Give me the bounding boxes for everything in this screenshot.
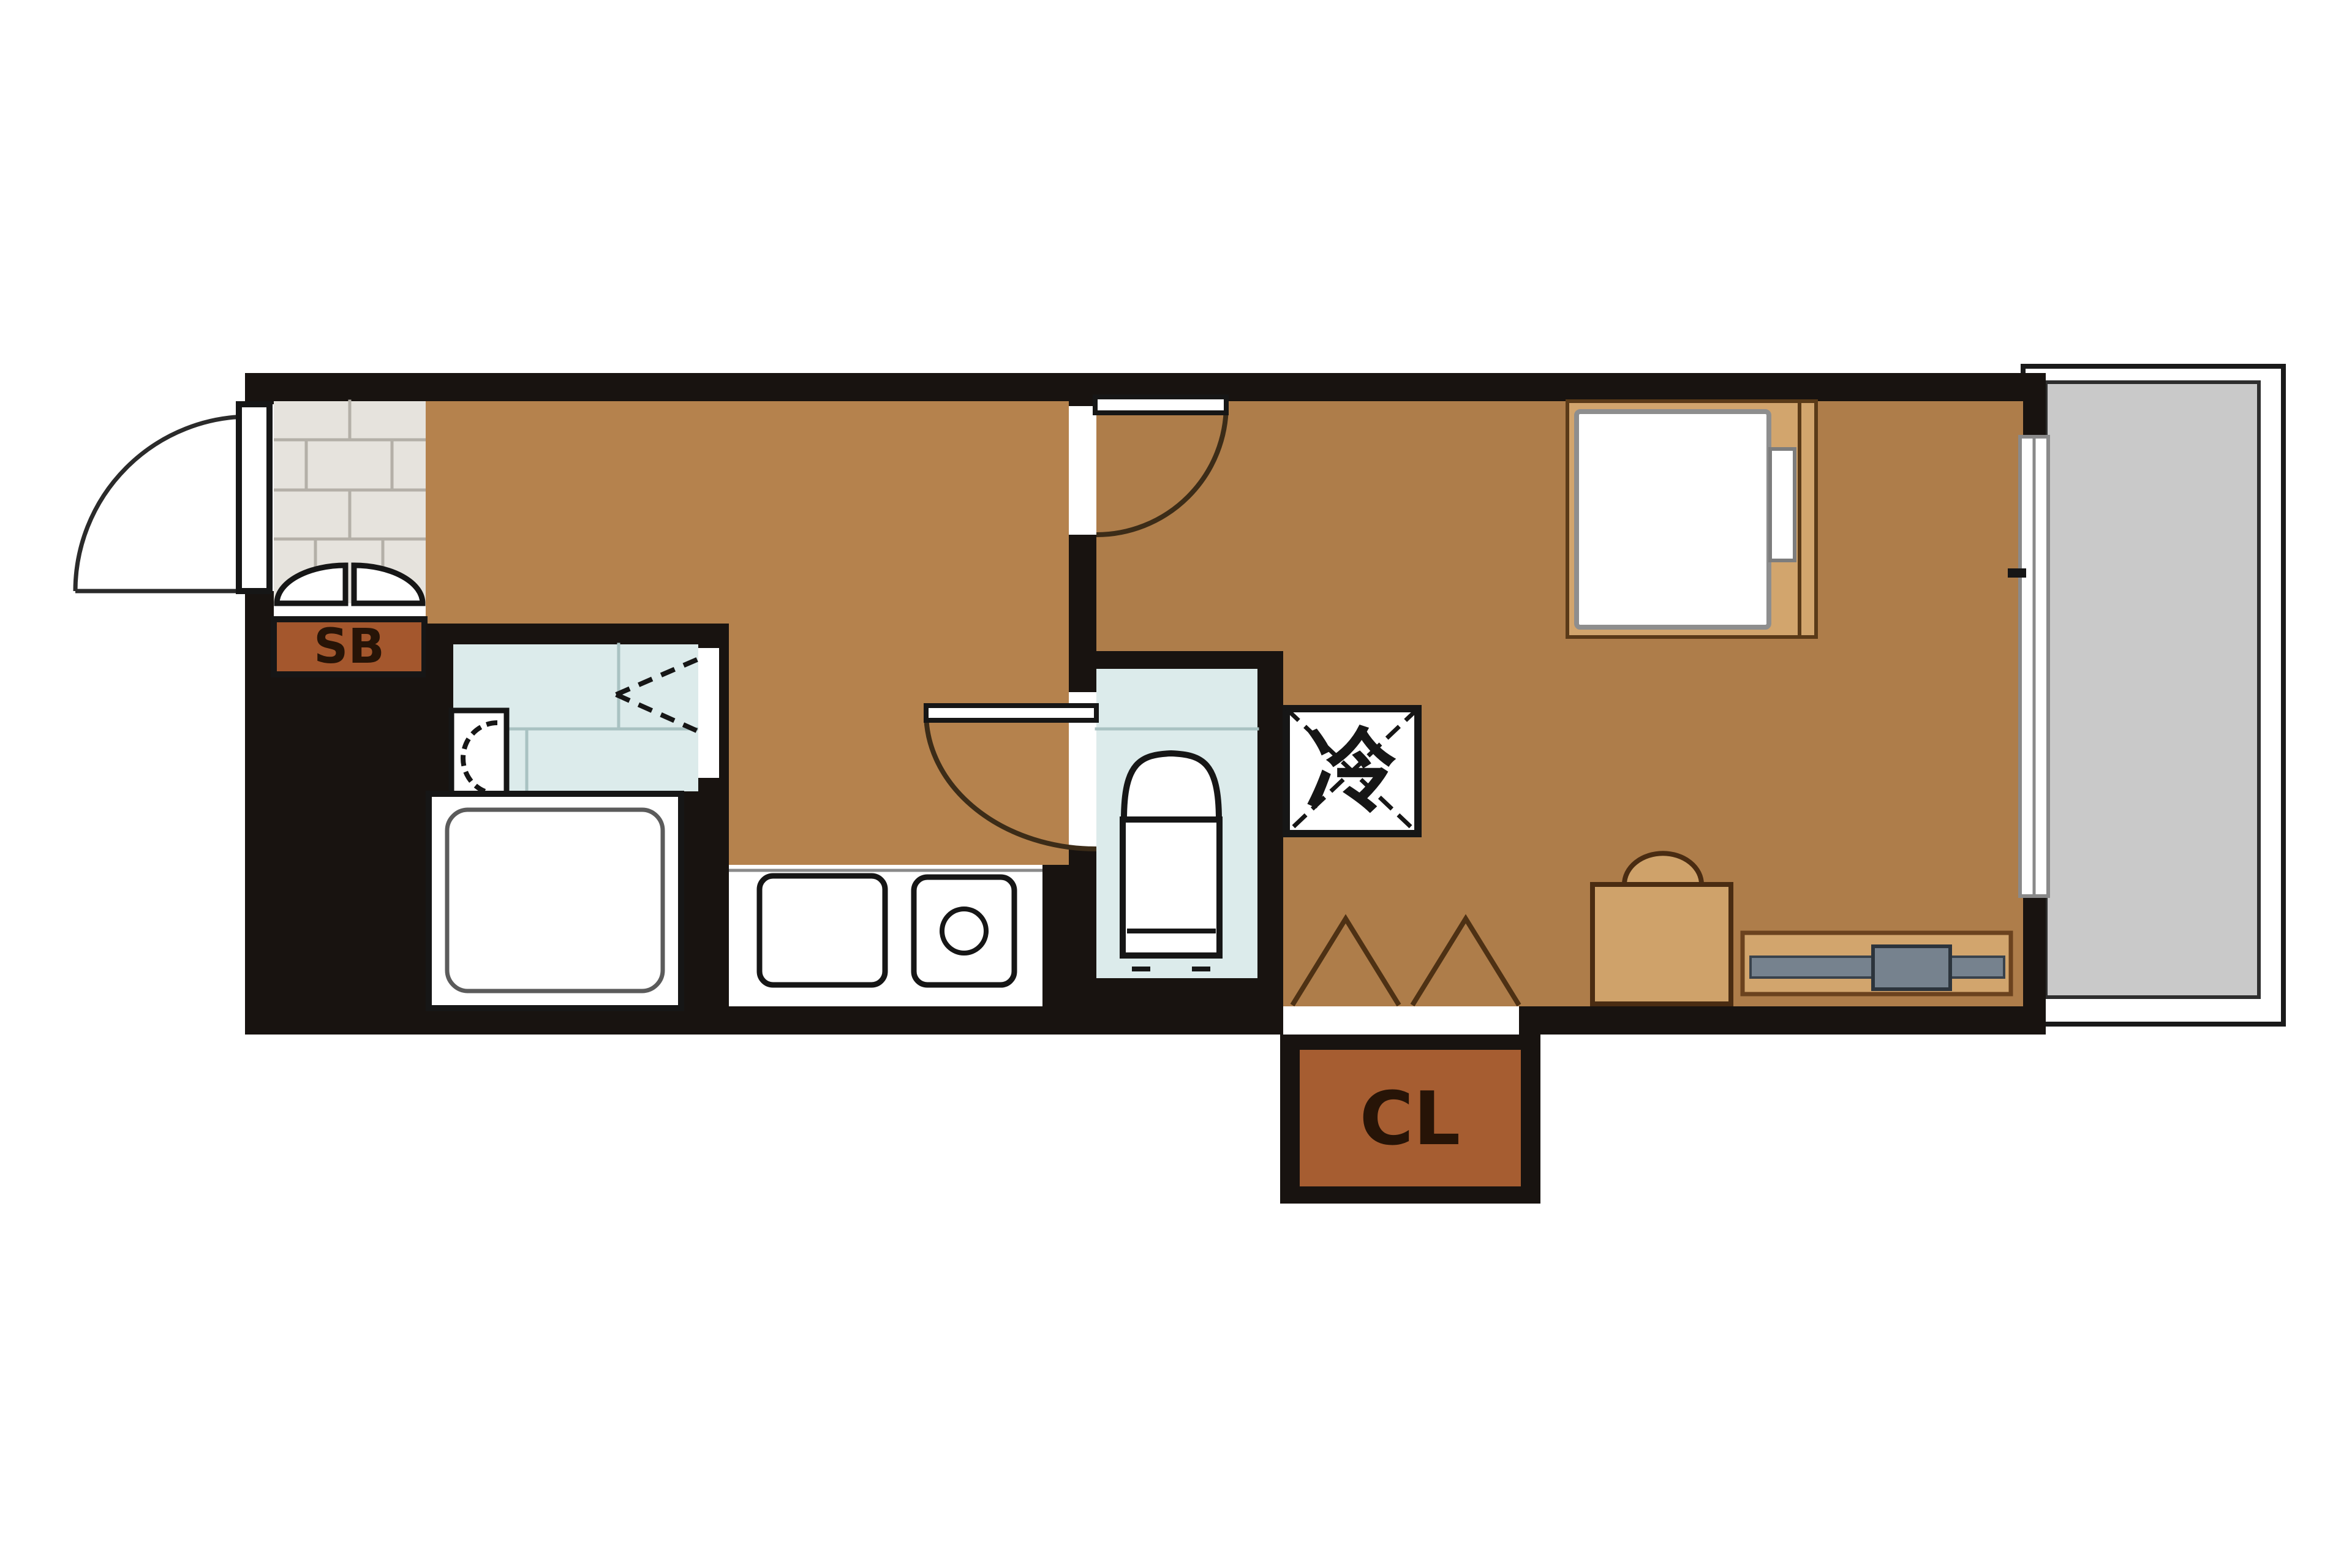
pillow <box>1770 449 1795 560</box>
bedroom-doorway <box>1069 406 1096 535</box>
floor-plan: SB 冷 CL <box>0 0 2352 1568</box>
bathroom-door-opening <box>698 648 719 778</box>
shoe-box-label: SB <box>314 619 385 674</box>
entrance-door <box>239 404 269 591</box>
toilet-tank <box>1123 820 1219 956</box>
desk <box>1593 884 1731 1004</box>
kitchen-sink <box>759 876 885 985</box>
toilet-top-wall <box>1096 651 1283 669</box>
closet-label: CL <box>1360 1077 1461 1162</box>
bedroom-door <box>1095 397 1226 413</box>
balcony-floor <box>2046 382 2259 997</box>
toilet-bowl <box>1124 753 1219 820</box>
toilet-door <box>926 706 1096 720</box>
refrigerator-label: 冷 <box>1306 719 1398 826</box>
mattress <box>1577 412 1769 627</box>
stove <box>914 877 1014 985</box>
toilet-right-wall <box>1257 651 1283 1035</box>
tv <box>1873 946 1950 989</box>
window-handle <box>2008 568 2026 578</box>
toilet-bottom-wall <box>1096 978 1257 1035</box>
closet-opening <box>1283 1006 1519 1035</box>
bathtub <box>429 794 681 1008</box>
